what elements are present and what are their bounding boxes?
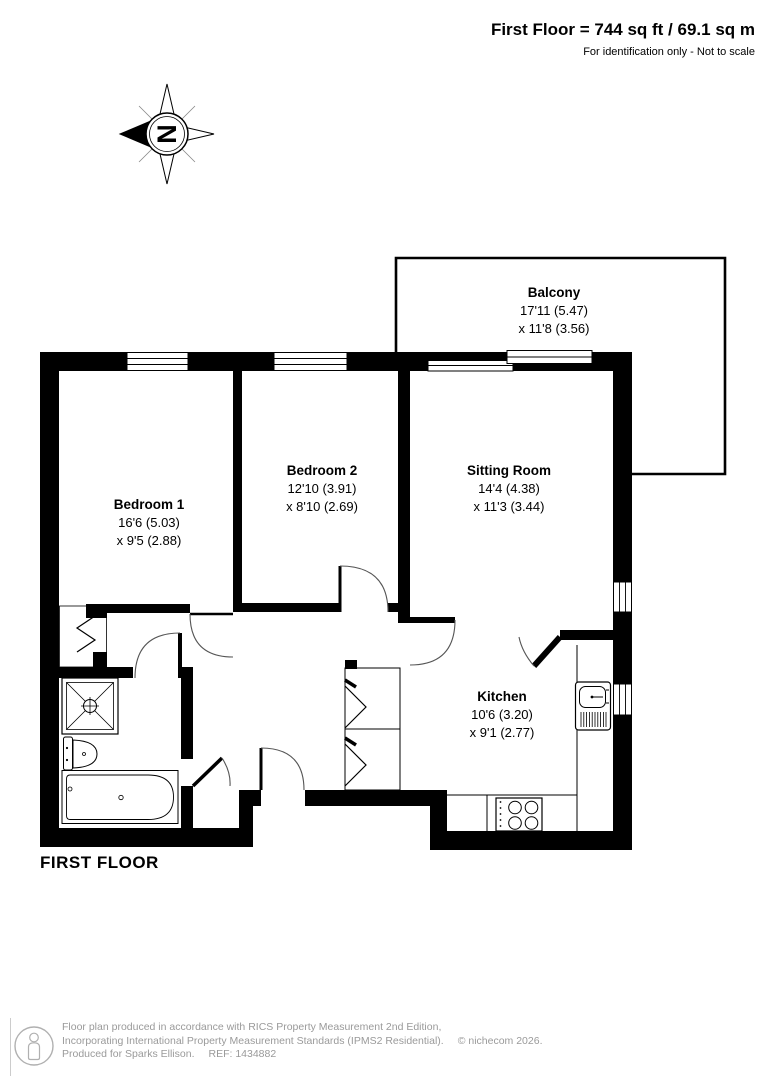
footer-copyright: © nichecom 2026. [458,1035,543,1047]
windows [127,351,632,716]
footer-ref: REF: 1434882 [208,1048,276,1060]
room-dims: 12'10 (3.91) [286,480,358,498]
bathtub [62,771,178,824]
footer-line-2: Incorporating International Property Mea… [62,1035,543,1049]
room-dims: 17'11 (5.47) [519,302,590,320]
room-label-kitchen: Kitchen 10'6 (3.20) x 9'1 (2.77) [470,688,535,742]
closet-bifold [345,668,400,790]
room-name: Sitting Room [467,462,551,480]
floor-name-label: FIRST FLOOR [40,853,159,873]
page-subtitle: For identification only - Not to scale [583,46,755,58]
room-label-sitting-room: Sitting Room 14'4 (4.38) x 11'3 (3.44) [467,462,551,516]
toilet [64,737,98,770]
hob [496,798,542,831]
doors [135,566,560,790]
nichecom-person-logo-icon [15,1027,53,1065]
room-dims: x 8'10 (2.69) [286,498,358,516]
room-dims: x 11'3 (3.44) [467,498,551,516]
footer-line-1: Floor plan produced in accordance with R… [62,1021,543,1035]
room-dims: x 11'8 (3.56) [519,320,590,338]
room-label-balcony: Balcony 17'11 (5.47) x 11'8 (3.56) [519,284,590,338]
footer-produced-for: Produced for Sparks Ellison. [62,1048,194,1060]
footer-ipms-text: Incorporating International Property Mea… [62,1035,444,1047]
entrance-opening [261,789,305,807]
footer-divider [10,1018,11,1076]
room-label-bedroom-1: Bedroom 1 16'6 (5.03) x 9'5 (2.88) [114,496,185,550]
floorplan-page: { "header": { "title": "First Floor = 74… [0,0,764,1080]
room-dims: x 9'1 (2.77) [470,724,535,742]
room-name: Bedroom 1 [114,496,185,514]
room-name: Balcony [519,284,590,302]
room-dims: x 9'5 (2.88) [114,532,185,550]
room-dims: 14'4 (4.38) [467,480,551,498]
room-name: Kitchen [470,688,535,706]
kitchen-sink [576,682,611,730]
compass-letter: N [152,124,182,144]
room-label-bedroom-2: Bedroom 2 12'10 (3.91) x 8'10 (2.69) [286,462,358,516]
footer-disclaimer: Floor plan produced in accordance with R… [62,1021,543,1062]
room-name: Bedroom 2 [286,462,358,480]
room-dims: 16'6 (5.03) [114,514,185,532]
room-dims: 10'6 (3.20) [470,706,535,724]
page-title: First Floor = 744 sq ft / 69.1 sq m [491,20,755,40]
shower [62,678,118,734]
compass-north-icon: N [120,84,214,184]
footer-line-3: Produced for Sparks Ellison.REF: 1434882 [62,1048,543,1062]
